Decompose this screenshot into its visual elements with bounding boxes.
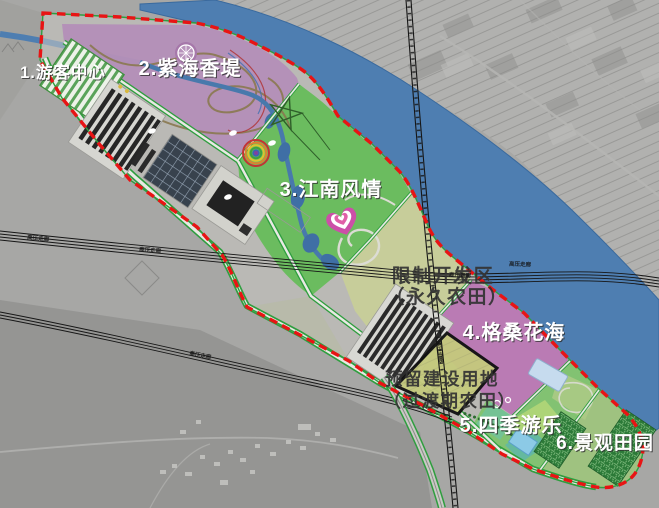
reserved-land-label-line2: （过渡期农田） (384, 391, 517, 411)
zone-label-purple-sea: 2.紫海香堤 (139, 56, 242, 80)
zone-label-visitor-center: 1.游客中心 (20, 62, 106, 82)
zone-label-landscape-fields: 6.景观田园 (556, 432, 654, 454)
restricted-zone-label-line2: （永久农田） (385, 285, 508, 308)
zone-label-four-seasons: 5.四季游乐 (460, 413, 563, 437)
restricted-zone-label-line1: 限制开发区 (392, 264, 495, 287)
map-canvas: 1.游客中心 2.紫海香堤 3.江南风情 4.格桑花海 5.四季游乐 6.景观田… (0, 0, 659, 508)
reserved-land-label-line1: 预留建设用地 (385, 369, 499, 389)
zone-label-jiangnan: 3.江南风情 (280, 177, 383, 201)
zone-label-gesang: 4.格桑花海 (463, 320, 566, 344)
site-plan-map: 1.游客中心 2.紫海香堤 3.江南风情 4.格桑花海 5.四季游乐 6.景观田… (0, 0, 659, 508)
